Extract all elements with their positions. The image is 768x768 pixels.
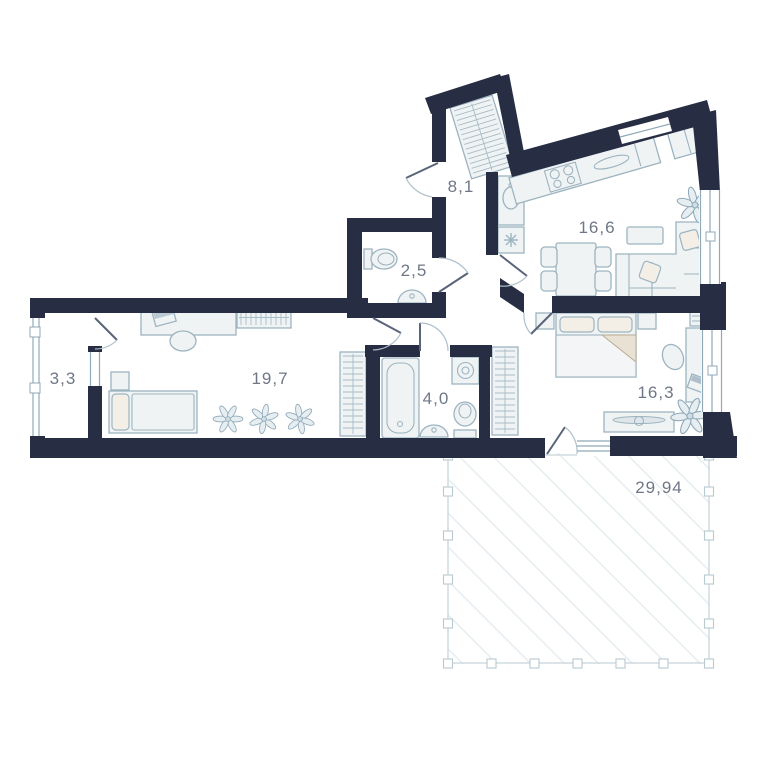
floor-plan-page: 8,1 2,5 16,6 3,3 19,7 4,0 16,3 29,94 (0, 0, 768, 768)
room-living (109, 307, 366, 440)
pillow (112, 394, 129, 430)
label-bathroom-area: 4,0 (423, 389, 450, 408)
entrance-door (406, 162, 448, 197)
label-wc-area: 2,5 (401, 261, 428, 280)
label-terrace-area: 29,94 (635, 478, 683, 497)
chair (541, 247, 557, 267)
desk-chair (658, 341, 687, 373)
desk-chair (170, 331, 196, 351)
plant-icon (213, 405, 243, 434)
coffee-table (627, 227, 663, 244)
nightstand (111, 372, 129, 390)
wardrobe (340, 352, 366, 436)
wc-door (430, 258, 468, 292)
washing-machine (452, 357, 479, 384)
sink (398, 290, 426, 303)
chair (595, 247, 611, 267)
label-bedroom-area: 16,3 (637, 383, 674, 402)
pillow (598, 317, 632, 332)
floor-plan: 8,1 2,5 16,6 3,3 19,7 4,0 16,3 29,94 (0, 0, 768, 768)
tv (613, 417, 665, 424)
label-loggia-area: 3,3 (50, 369, 77, 388)
nightstand (638, 313, 656, 329)
bedroom-window (701, 330, 723, 412)
heater-star-icon (504, 233, 518, 247)
pillow (560, 317, 594, 332)
toilet (454, 402, 476, 426)
plant-icon (243, 398, 284, 439)
chair (595, 271, 611, 291)
label-hallway-area: 8,1 (448, 177, 475, 196)
plant-icon (283, 402, 316, 436)
chair (541, 271, 557, 291)
label-room-area: 19,7 (251, 369, 288, 388)
terrace-window (577, 436, 610, 456)
bathroom-door (420, 323, 448, 351)
loggia-door (95, 318, 117, 349)
dining-table (556, 243, 596, 296)
toilet-tank (454, 430, 476, 438)
sofa-pillow (679, 229, 701, 251)
wardrobe (492, 347, 518, 435)
living-room-window (699, 190, 721, 284)
sink (420, 425, 448, 437)
loggia-glazing (30, 318, 40, 436)
toilet (371, 249, 397, 269)
label-kitchen-living-area: 16,6 (578, 218, 615, 237)
loggia-window (88, 352, 102, 386)
